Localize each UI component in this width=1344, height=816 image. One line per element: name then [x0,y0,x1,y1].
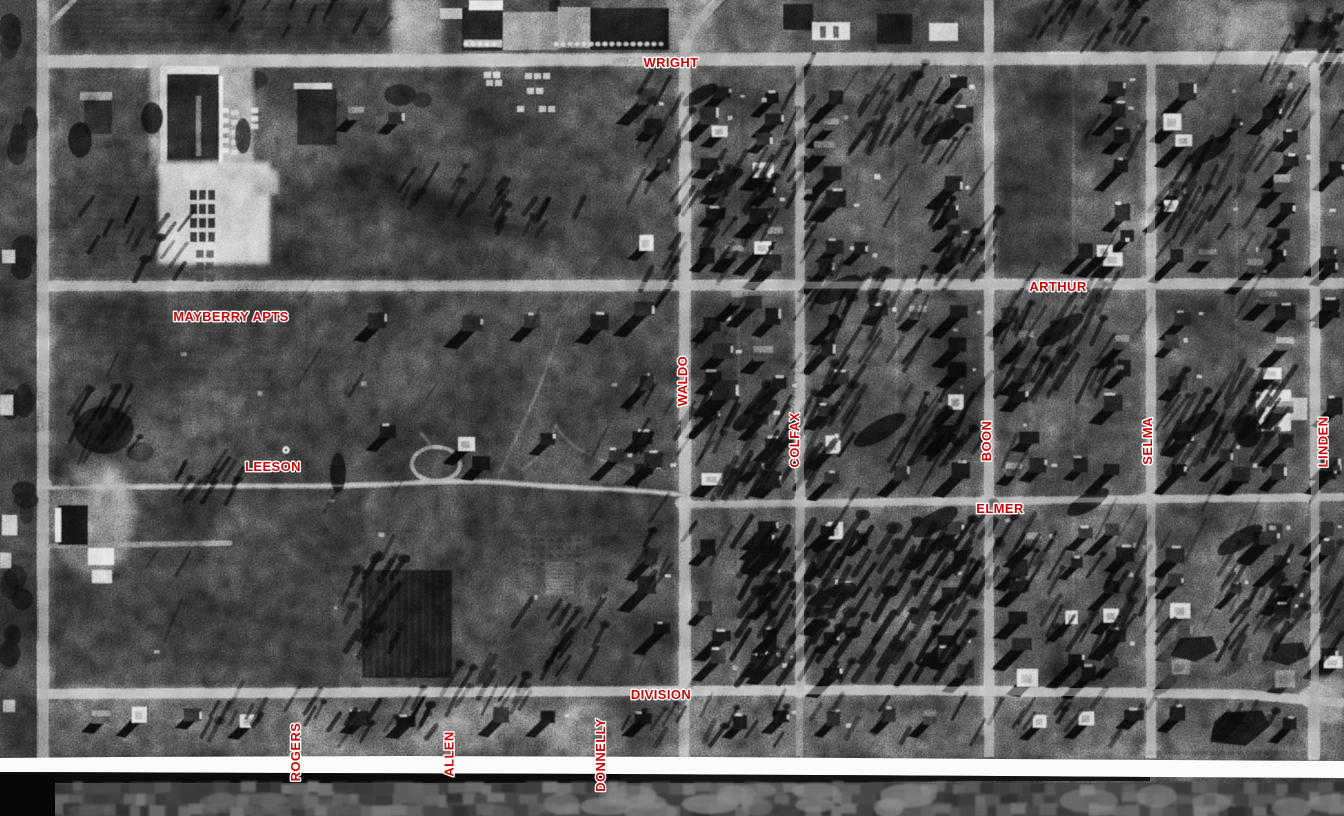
svg-text:MAYBERRY APTS: MAYBERRY APTS [173,309,288,324]
svg-text:DONNELLY: DONNELLY [593,718,608,792]
svg-text:COLFAX: COLFAX [787,412,802,467]
svg-text:WALDO: WALDO [675,356,690,406]
svg-text:SELMA: SELMA [1140,417,1155,465]
svg-text:LEESON: LEESON [245,459,301,474]
svg-text:LINDEN: LINDEN [1316,417,1331,468]
svg-text:ELMER: ELMER [976,501,1024,516]
svg-text:ARTHUR: ARTHUR [1029,279,1086,294]
svg-text:BOON: BOON [979,421,994,462]
svg-text:ROGERS: ROGERS [288,723,303,782]
svg-text:WRIGHT: WRIGHT [643,55,698,70]
svg-text:DIVISION: DIVISION [631,687,691,702]
svg-text:ALLEN: ALLEN [442,731,457,776]
